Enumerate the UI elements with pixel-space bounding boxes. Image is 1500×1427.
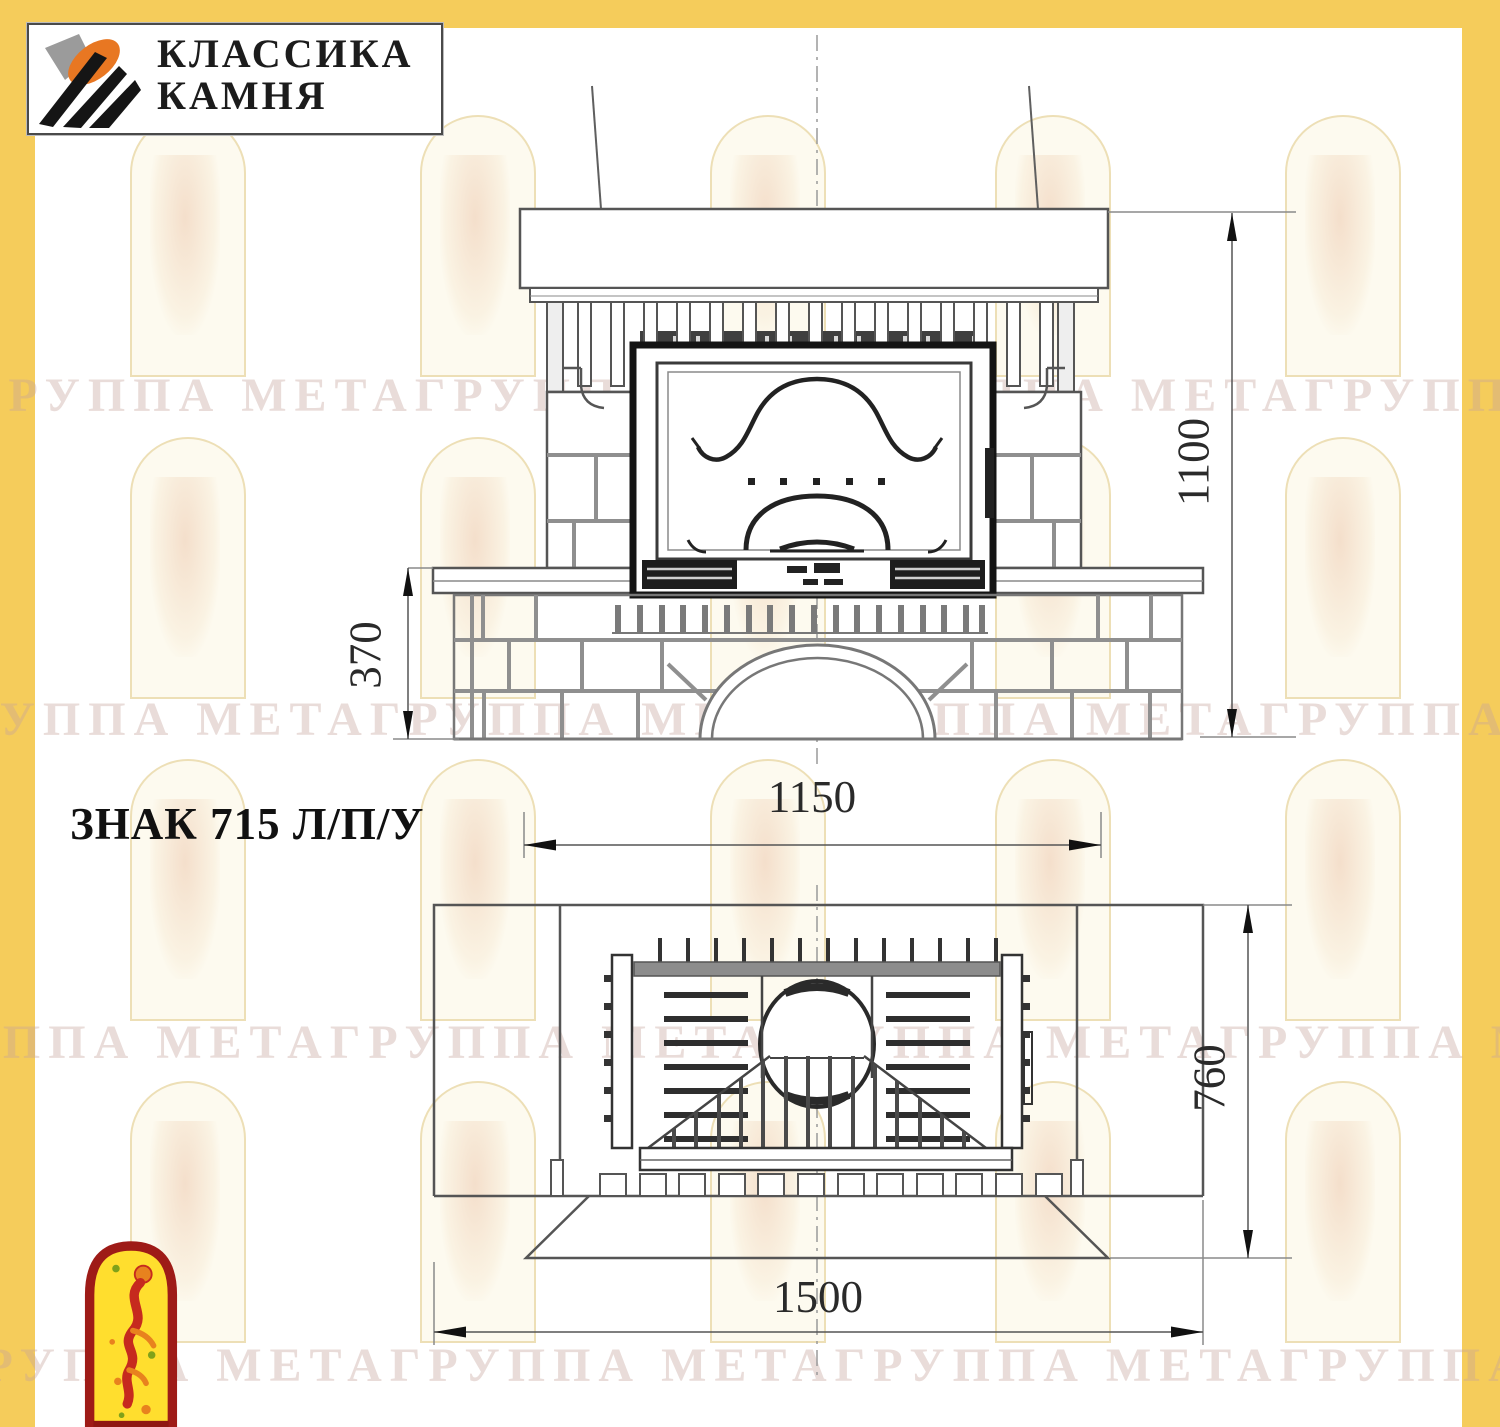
dimension-width-1500: 1500 — [434, 1200, 1203, 1345]
dimension-height-1100: 1100 — [1108, 212, 1296, 737]
company-logo: КЛАССИКА КАМНЯ — [27, 23, 443, 135]
dimension-depth-760: 760 — [1110, 905, 1292, 1258]
stone-base — [454, 595, 1182, 739]
svg-text:370: 370 — [340, 621, 390, 689]
logo-text-line1: КЛАССИКА — [157, 33, 413, 75]
logo-text-line2: КАМНЯ — [157, 75, 413, 117]
plan-top-fins — [658, 938, 998, 962]
leader-line-right — [1029, 86, 1038, 209]
svg-text:1500: 1500 — [773, 1272, 863, 1322]
mantel-shelf — [520, 209, 1108, 302]
fireplace-technical-drawing: 1100 370 1150 — [0, 0, 1500, 1427]
flue-collar — [760, 981, 874, 1107]
model-title: ЗНАК 715 Л/П/У — [70, 798, 424, 850]
dimension-width-1150: 1150 — [524, 772, 1101, 858]
svg-text:1150: 1150 — [768, 772, 856, 822]
brick-column-right — [995, 368, 1081, 568]
plan-insert — [604, 938, 1032, 1170]
svg-text:1100: 1100 — [1168, 418, 1218, 506]
drawing-sheet: ГРУППА МЕТАГРУППА МЕТАГРУППА МЕТАГРУППА … — [0, 0, 1500, 1427]
plan-view-drawing: 760 1500 — [434, 885, 1292, 1380]
under-firebox-posts — [612, 605, 988, 633]
door-hinge — [985, 448, 994, 518]
firebox — [633, 345, 994, 595]
brick-column-left — [547, 368, 633, 568]
leader-line-left — [592, 86, 601, 209]
svg-text:760: 760 — [1184, 1044, 1234, 1112]
front-view-drawing: 1100 370 1150 — [340, 35, 1296, 858]
metagroup-emblem-icon — [84, 1240, 178, 1427]
logo-graphic-stone-icon — [37, 27, 157, 129]
